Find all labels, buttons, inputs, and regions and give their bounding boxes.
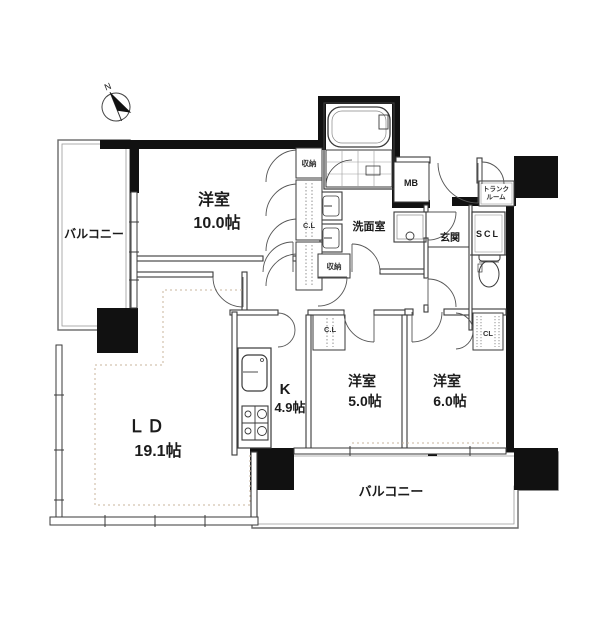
bedroom6-size: 6.0帖 <box>433 393 466 409</box>
doors <box>213 150 504 349</box>
pillar-top-right <box>514 156 558 198</box>
pillar-ld-corner <box>97 308 138 353</box>
closet-washroom-label: 収納 <box>327 261 342 271</box>
bedroom5-name: 洋室 <box>348 373 376 389</box>
washroom-name: 洗面室 <box>353 219 386 233</box>
bath-door-arc <box>326 160 352 186</box>
closet-bedroom5-label: C.L <box>324 325 337 334</box>
kitchen-name: K <box>280 381 291 398</box>
bedroom5-size: 5.0帖 <box>348 393 381 409</box>
balcony-left-label: バルコニー <box>64 227 124 241</box>
bathroom <box>324 103 394 189</box>
structural-walls <box>97 96 558 490</box>
balcony-bottom: バルコニー <box>252 452 558 528</box>
ld-door-arc <box>213 277 243 307</box>
bedroom10-size: 10.0帖 <box>193 213 240 232</box>
ld-name: ＬＤ <box>128 417 166 436</box>
shoes-closet-label: SCL <box>476 229 500 239</box>
pillar-balcony-right <box>514 448 558 490</box>
closet-bedroom6-label: CL <box>483 329 493 338</box>
hall-lower-door-arc <box>428 279 456 307</box>
bedroom5-door-arc <box>344 312 374 342</box>
floorplan-canvas: バルコニー バルコニー <box>0 0 612 618</box>
kitchen-stove <box>242 406 268 440</box>
bath-faucet <box>379 115 388 129</box>
bath-counter <box>366 166 380 175</box>
washing-machine-pan <box>394 212 426 242</box>
closet-hall-label: C.L <box>303 221 316 230</box>
kitchen-size: 4.9帖 <box>274 400 305 415</box>
ld-size: 19.1帖 <box>134 441 181 460</box>
balcony-bottom-label: バルコニー <box>359 484 424 499</box>
floorplan-svg: バルコニー バルコニー <box>0 0 612 618</box>
compass-north-label: N <box>103 81 113 93</box>
compass: N <box>93 77 135 126</box>
entrance-name: 玄関 <box>440 231 460 244</box>
trunk-room-label-1: トランク <box>483 184 509 193</box>
bathtub <box>328 107 390 147</box>
meter-box-label: MB <box>404 178 418 188</box>
north-needle <box>110 88 131 118</box>
bedroom10-door-arc <box>263 242 293 272</box>
trunk-room-label-2: ルーム <box>486 193 506 201</box>
bath-tile-grid <box>326 150 392 187</box>
bedroom6-door-arc <box>412 312 442 342</box>
closet-bedroom10-label: 収納 <box>302 158 317 168</box>
balcony-left: バルコニー <box>58 140 130 330</box>
washroom-door-arc <box>352 244 380 272</box>
kitchen-counter <box>238 348 271 448</box>
bedroom6-name: 洋室 <box>433 373 461 389</box>
bedroom10-name: 洋室 <box>198 190 230 209</box>
